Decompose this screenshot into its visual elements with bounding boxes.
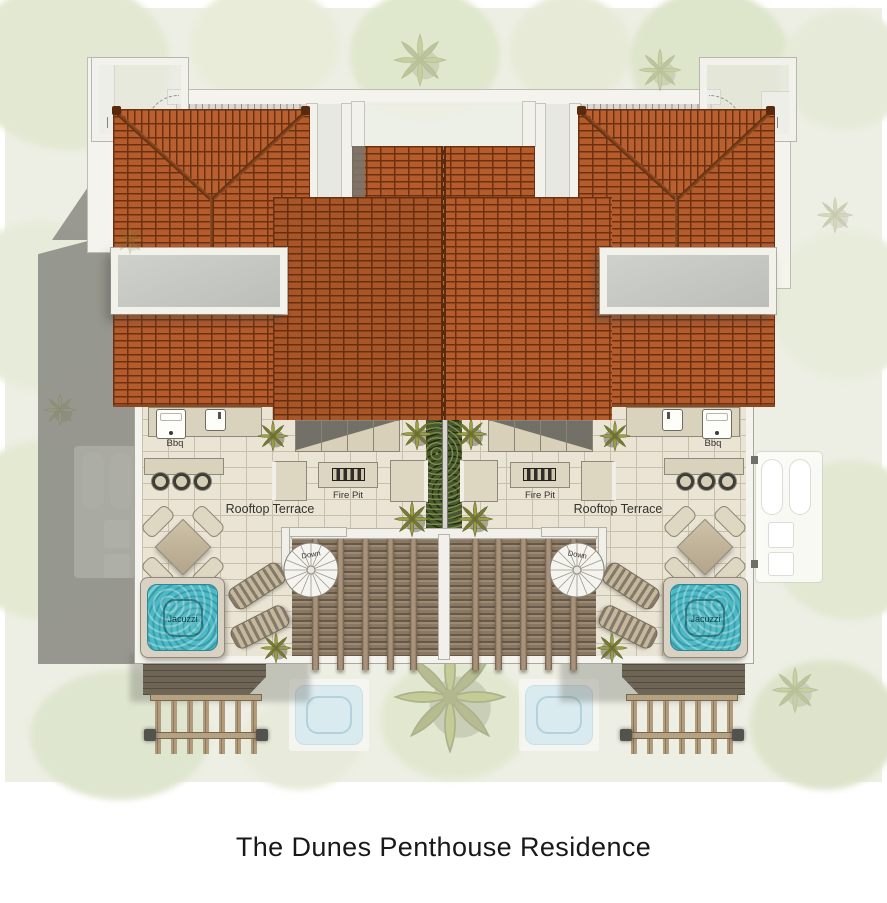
jacuzzi-label: Jacuzzi bbox=[664, 614, 747, 624]
party-wall-seam bbox=[441, 146, 446, 420]
bar-stool bbox=[677, 473, 694, 490]
palm-plant-icon bbox=[456, 500, 493, 537]
jacuzzi: Jacuzzi bbox=[140, 577, 225, 658]
palm-tree-icon bbox=[771, 666, 819, 714]
palm-tree-icon bbox=[816, 196, 853, 233]
courtyard-gap-center bbox=[352, 102, 535, 146]
bar-stool bbox=[719, 473, 736, 490]
bar-stool bbox=[173, 473, 190, 490]
lower-deck-strip-left bbox=[143, 662, 266, 695]
roof-ridge bbox=[210, 196, 214, 254]
trellis-post-cap bbox=[620, 729, 632, 741]
trellis-stairs-left bbox=[150, 694, 262, 758]
bar-stool bbox=[152, 473, 169, 490]
palm-plant-icon bbox=[257, 420, 289, 452]
bbq-label: Bbq bbox=[149, 438, 201, 449]
sectional-sofa bbox=[488, 420, 593, 452]
palm-tree-icon bbox=[43, 393, 77, 427]
fire-pit-label: Fire Pit bbox=[505, 490, 575, 501]
bar-stool bbox=[698, 473, 715, 490]
terrace-label: Rooftop Terrace bbox=[568, 502, 668, 516]
palm-plant-icon bbox=[400, 417, 434, 451]
palm-plant-icon bbox=[599, 420, 631, 452]
roof-shade-face bbox=[352, 146, 365, 200]
palm-plant-icon bbox=[260, 632, 292, 664]
faded-lounger bbox=[82, 452, 104, 510]
trellis-cross-bar bbox=[626, 732, 738, 739]
palm-tree-icon bbox=[393, 33, 447, 87]
jacuzzi-label: Jacuzzi bbox=[141, 614, 224, 624]
lower-balcony-left bbox=[74, 446, 136, 578]
faded-table bbox=[104, 554, 130, 578]
wall-strip bbox=[535, 104, 545, 202]
palm-tree-icon bbox=[638, 48, 682, 92]
faded-lounger bbox=[110, 452, 132, 510]
trellis-top-bar bbox=[626, 694, 738, 701]
roof-ridge bbox=[675, 196, 679, 254]
terrace-label: Rooftop Terrace bbox=[220, 502, 320, 516]
wall-strip bbox=[342, 104, 352, 202]
faded-table bbox=[768, 522, 794, 548]
palm-plant-icon bbox=[596, 632, 628, 664]
jacuzzi: Jacuzzi bbox=[663, 577, 748, 658]
bbq-grill bbox=[702, 409, 732, 439]
faded-table bbox=[768, 552, 794, 576]
faded-lounger bbox=[789, 459, 811, 515]
wall-strip bbox=[523, 102, 535, 146]
skylight-left bbox=[111, 248, 287, 314]
bbq-grill bbox=[156, 409, 186, 439]
lower-deck-strip-right bbox=[622, 662, 745, 695]
trellis-post-cap bbox=[256, 729, 268, 741]
plan-title: The Dunes Penthouse Residence bbox=[0, 832, 887, 863]
roof-shade-half bbox=[273, 197, 443, 420]
stair-landing bbox=[281, 527, 347, 537]
palm-tree-icon bbox=[115, 225, 146, 256]
fire-pit-label: Fire Pit bbox=[313, 490, 383, 501]
bar-stool bbox=[194, 473, 211, 490]
armchair bbox=[460, 460, 498, 502]
bbq-label: Bbq bbox=[687, 438, 739, 449]
fire-pit-burner bbox=[332, 468, 365, 481]
fire-pit-burner bbox=[523, 468, 556, 481]
lower-balcony-right bbox=[756, 452, 822, 582]
sink bbox=[662, 409, 683, 431]
faded-table bbox=[104, 520, 130, 548]
roof-finial bbox=[301, 106, 310, 115]
wall-strip bbox=[352, 102, 364, 146]
trellis-cross-bar bbox=[150, 732, 262, 739]
trellis-top-bar bbox=[150, 694, 262, 701]
trellis-post-cap bbox=[144, 729, 156, 741]
roof-finial bbox=[766, 106, 775, 115]
palm-plant-icon bbox=[454, 417, 488, 451]
armchair bbox=[581, 461, 616, 501]
faded-lounger bbox=[761, 459, 783, 515]
sink bbox=[205, 409, 226, 431]
armchair bbox=[390, 460, 428, 502]
trellis-stairs-right bbox=[626, 694, 738, 758]
roof-finial bbox=[112, 106, 121, 115]
skylight-right bbox=[600, 248, 776, 314]
trellis-bars bbox=[631, 696, 733, 754]
pool-seat bbox=[306, 696, 352, 734]
roof-finial bbox=[577, 106, 586, 115]
trellis-post-cap bbox=[732, 729, 744, 741]
armchair bbox=[272, 461, 307, 501]
sectional-sofa bbox=[295, 420, 400, 452]
palm-plant-icon bbox=[393, 500, 430, 537]
trellis-bars bbox=[155, 696, 257, 754]
